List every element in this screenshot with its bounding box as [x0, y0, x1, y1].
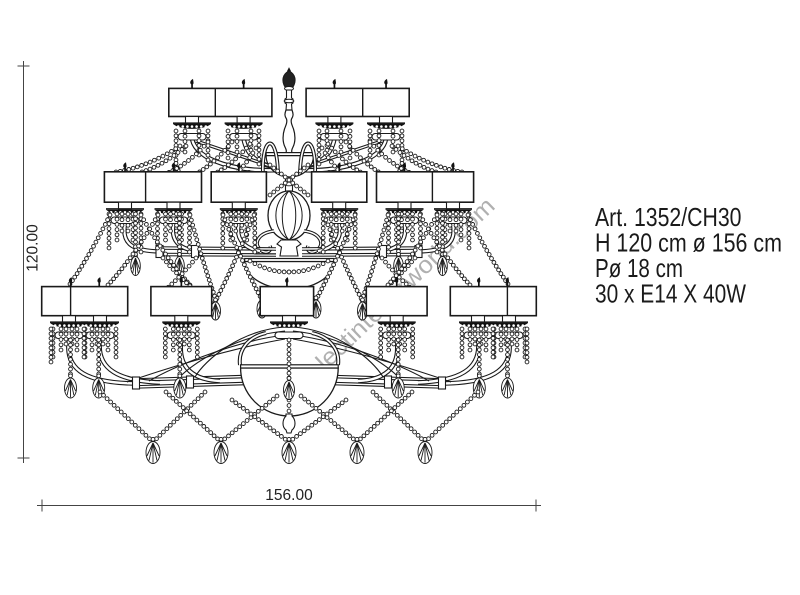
svg-text:30 x E14 X 40W: 30 x E14 X 40W: [595, 279, 746, 309]
svg-text:120.00: 120.00: [25, 224, 42, 272]
svg-text:156.00: 156.00: [265, 487, 313, 504]
